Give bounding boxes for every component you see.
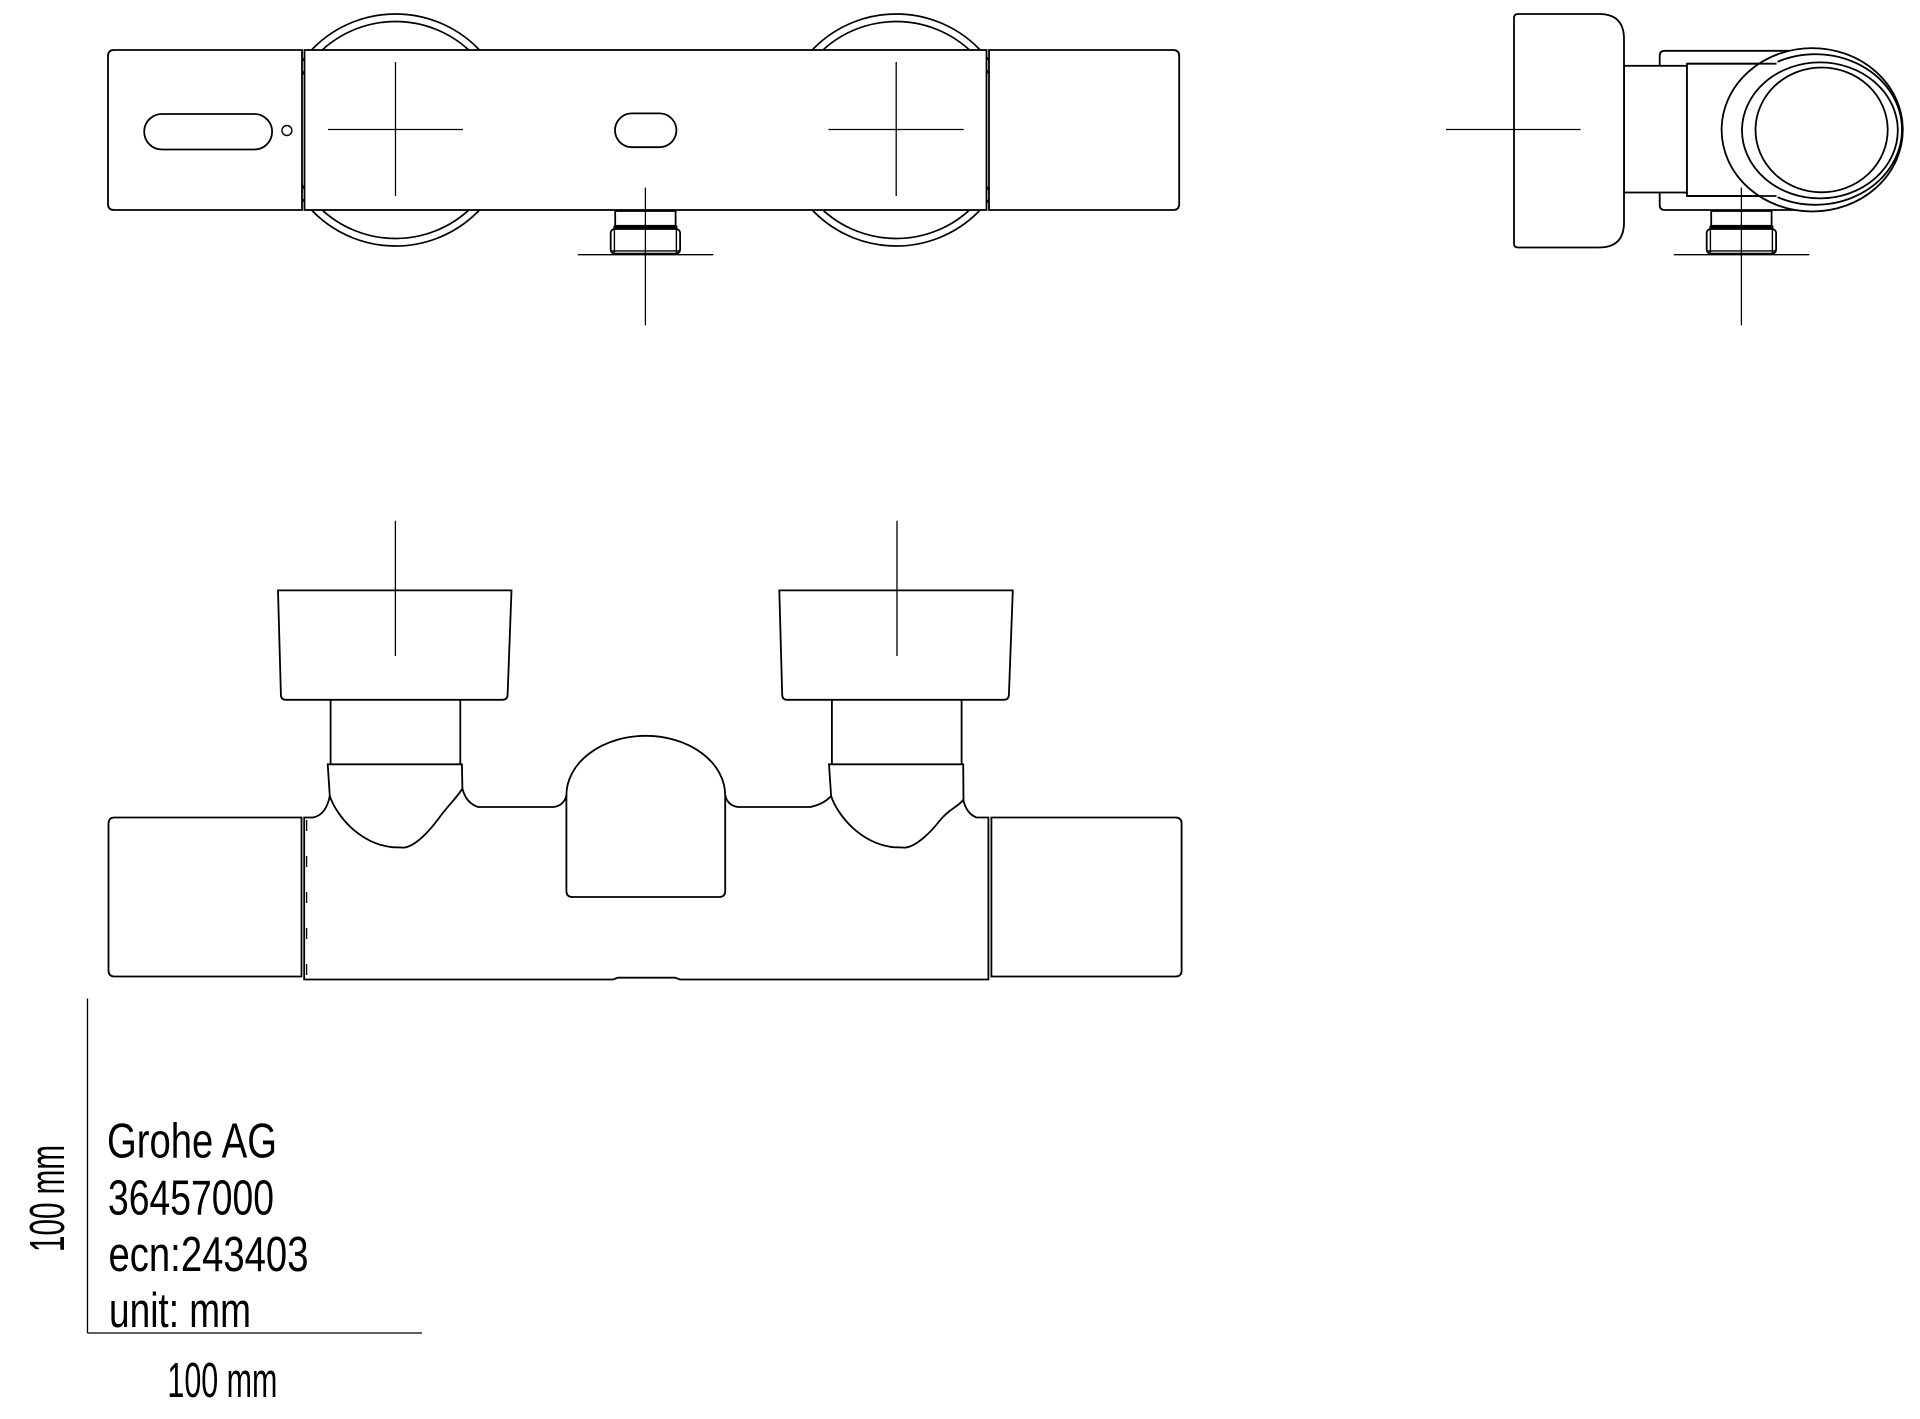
svg-text:ecn:243403: ecn:243403 <box>109 1228 309 1282</box>
svg-text:unit: mm: unit: mm <box>109 1284 251 1338</box>
svg-text:100 mm: 100 mm <box>167 1354 277 1408</box>
svg-text:Grohe AG: Grohe AG <box>107 1115 277 1169</box>
svg-text:36457000: 36457000 <box>108 1172 274 1226</box>
svg-text:100 mm: 100 mm <box>21 1145 75 1252</box>
